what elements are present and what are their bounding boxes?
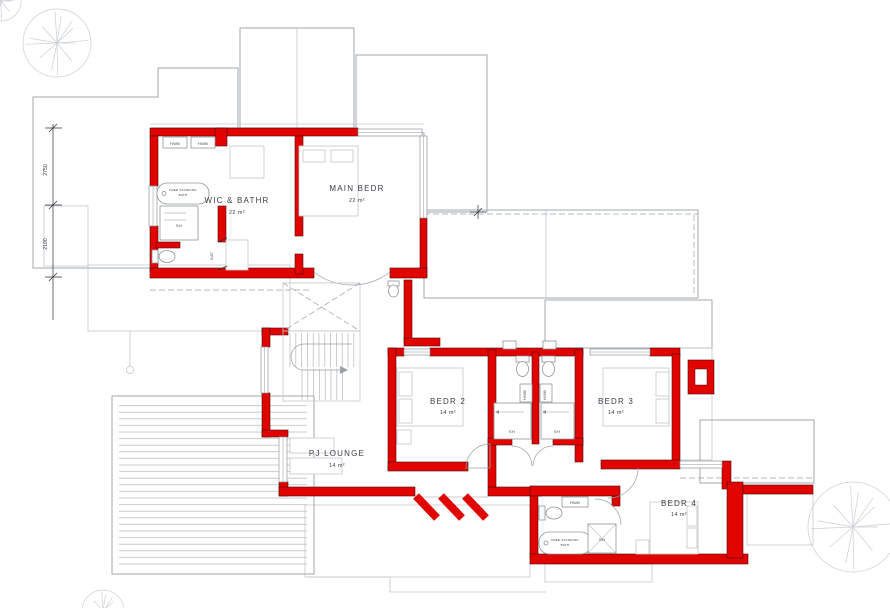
tree-icon (808, 482, 890, 572)
vent (543, 341, 556, 349)
roof-area-top-left (33, 68, 238, 268)
hwb-label: HWB (522, 390, 527, 400)
toilet-icon (152, 250, 175, 263)
window (149, 186, 157, 226)
room-area-bedr2: 14 m² (440, 410, 456, 416)
toilet-icon (539, 506, 562, 520)
dimension-label: 2190 (43, 238, 49, 250)
door-bath-right (533, 446, 553, 466)
room-area-main-bedr: 22 m² (349, 198, 365, 204)
tree-icon (0, 0, 21, 21)
stair-direction-arrow (291, 344, 352, 370)
window (358, 129, 422, 136)
room-label-wic-bathr: WIC & BATHR (204, 196, 269, 205)
hwb-label: HWB (198, 141, 208, 146)
diagonal-walls (415, 496, 488, 518)
stair-treads (290, 333, 354, 400)
vent (503, 341, 516, 349)
stairs (283, 283, 360, 401)
dimension-label: 2750 (43, 164, 49, 176)
bath-label: BATH (179, 193, 188, 197)
level-marker (470, 205, 486, 219)
window (420, 136, 427, 218)
shower-label: SH (599, 537, 605, 542)
window (404, 349, 430, 355)
roof-strip-below-bath (545, 564, 652, 582)
bath-label: FREE STANDING (169, 188, 197, 192)
wardrobe (230, 146, 264, 178)
window (590, 349, 650, 355)
floor-plan-drawing: 2750 2190 0,87 WIC & BATHR 22 m² MAIN BE… (0, 0, 890, 608)
dimensions: 2750 2190 0,87 (43, 124, 486, 320)
roof-area-bedr4-right (747, 494, 813, 545)
room-label-bedr4: BEDR 4 (661, 499, 697, 508)
downpipe-icon (127, 367, 134, 374)
window (261, 347, 268, 393)
room-label-bedr3: BEDR 3 (598, 397, 634, 406)
roof-area-center (545, 300, 712, 348)
roof-area-bottom-center (305, 505, 530, 577)
toilet-icon (516, 356, 529, 377)
wardrobe (226, 240, 248, 270)
bed-bedr4 (636, 502, 698, 554)
window (680, 461, 722, 468)
room-area-wic-bathr: 22 m² (229, 210, 245, 216)
door-bath-left (512, 446, 532, 466)
bed-main (299, 146, 358, 216)
room-area-bedr4: 14 m² (671, 512, 687, 518)
chimney (688, 360, 714, 394)
hwb-label: HWB (170, 141, 180, 146)
shower-label: SH (509, 429, 515, 434)
dimension-label: 0,87 (209, 251, 214, 260)
room-label-bedr2: BEDR 2 (430, 397, 466, 406)
room-label-main-bedr: MAIN BEDR (329, 184, 384, 193)
bath-label: FREE STANDING (551, 538, 579, 542)
tree-icon (82, 590, 124, 608)
window (279, 437, 287, 482)
shower-label: SH (554, 429, 560, 434)
toilet-icon (388, 281, 399, 297)
toilet-icon (542, 356, 555, 377)
door-bedr2 (466, 444, 490, 468)
shower-label: SH (176, 223, 182, 228)
bed-bedr2 (397, 368, 463, 444)
bath-label: BATH (561, 543, 570, 547)
tree-icon (23, 9, 91, 77)
floor-plan-canvas: 2750 2190 0,87 WIC & BATHR 22 m² MAIN BE… (0, 0, 890, 608)
room-label-pj-lounge: PJ LOUNGE (309, 449, 365, 458)
hwb-label: HWB (570, 500, 580, 505)
deck-right (424, 210, 698, 298)
hwb-label: HWB (542, 390, 547, 400)
room-area-bedr3: 14 m² (608, 410, 624, 416)
room-area-pj-lounge: 14 m² (329, 463, 345, 469)
roof-area-lower-right (700, 420, 814, 483)
